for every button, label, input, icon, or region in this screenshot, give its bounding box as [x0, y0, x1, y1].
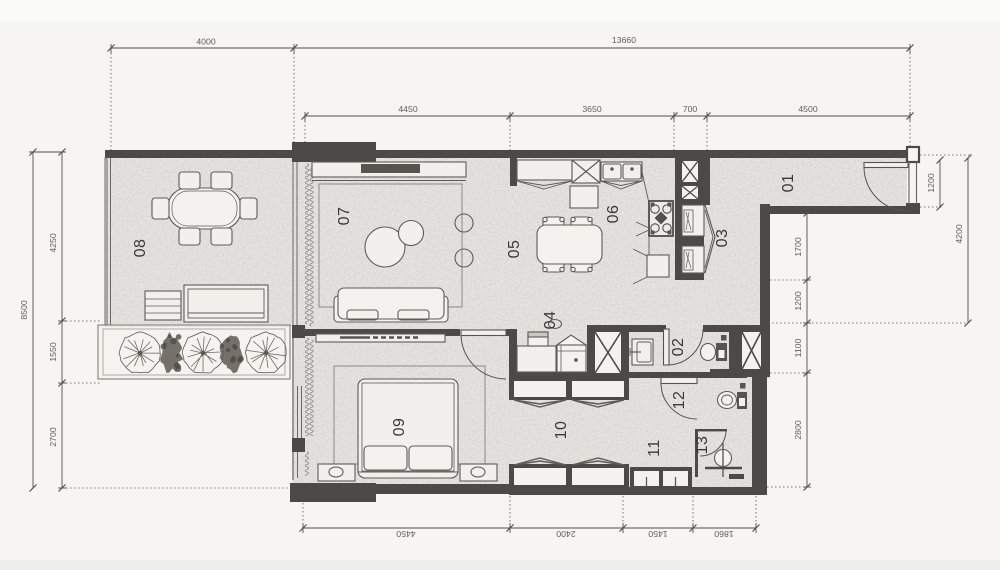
svg-text:13660: 13660	[612, 35, 636, 45]
svg-text:1860: 1860	[714, 529, 733, 539]
svg-text:1550: 1550	[48, 342, 58, 361]
svg-text:1450: 1450	[648, 529, 667, 539]
svg-text:1100: 1100	[793, 338, 803, 357]
svg-text:1200: 1200	[793, 291, 803, 310]
svg-text:09: 09	[391, 418, 408, 437]
svg-text:1200: 1200	[926, 173, 936, 192]
svg-text:2800: 2800	[793, 420, 803, 439]
svg-text:04: 04	[542, 311, 559, 330]
svg-text:01: 01	[780, 174, 797, 193]
svg-text:11: 11	[646, 439, 663, 457]
svg-text:12: 12	[671, 391, 688, 410]
svg-text:03: 03	[714, 229, 731, 248]
svg-text:4450: 4450	[398, 104, 417, 114]
svg-text:02: 02	[670, 338, 687, 357]
svg-text:07: 07	[336, 207, 353, 226]
svg-text:700: 700	[683, 104, 698, 114]
svg-text:08: 08	[132, 239, 149, 258]
svg-text:4450: 4450	[396, 529, 415, 539]
svg-text:4500: 4500	[798, 104, 817, 114]
svg-text:13: 13	[694, 436, 711, 455]
svg-text:8500: 8500	[19, 300, 29, 319]
svg-text:10: 10	[553, 421, 570, 440]
svg-text:1700: 1700	[793, 237, 803, 256]
svg-text:4000: 4000	[196, 37, 215, 47]
svg-text:05: 05	[506, 240, 523, 259]
svg-text:3650: 3650	[582, 104, 601, 114]
svg-text:4250: 4250	[48, 233, 58, 252]
svg-text:2700: 2700	[48, 427, 58, 446]
svg-text:4200: 4200	[954, 224, 964, 243]
svg-text:06: 06	[605, 205, 622, 224]
svg-text:2400: 2400	[556, 529, 575, 539]
